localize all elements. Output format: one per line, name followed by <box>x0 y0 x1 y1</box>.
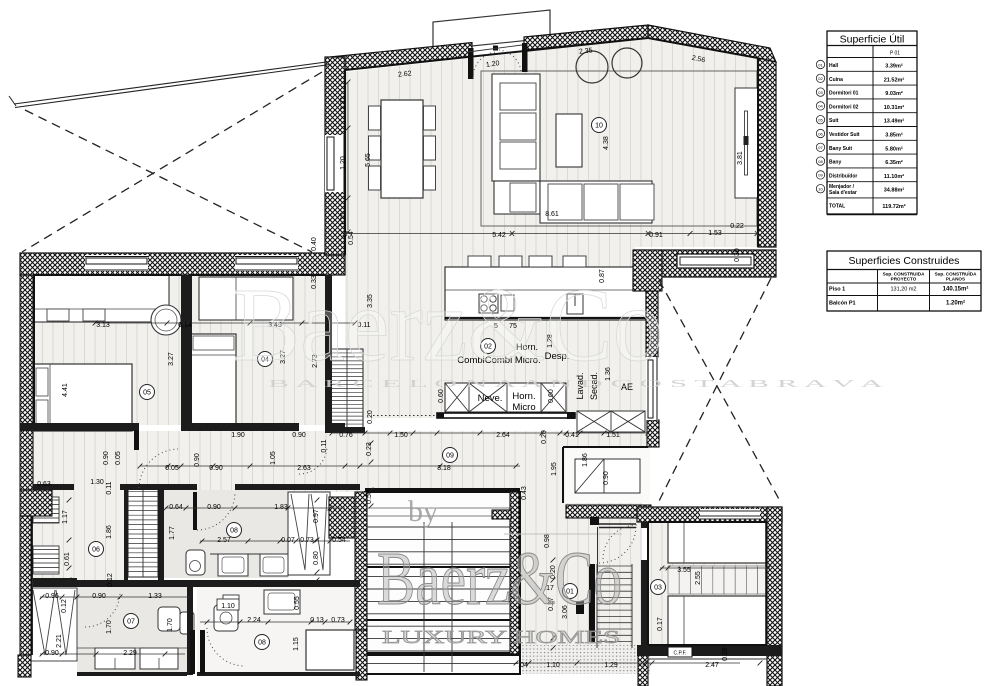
svg-text:0.73: 0.73 <box>300 537 314 544</box>
svg-text:0.80: 0.80 <box>313 551 320 565</box>
svg-text:05: 05 <box>143 390 151 397</box>
svg-text:0.55: 0.55 <box>294 596 301 610</box>
svg-text:0.14: 0.14 <box>178 322 192 329</box>
svg-text:06: 06 <box>818 131 823 136</box>
svg-text:3.81: 3.81 <box>737 151 744 165</box>
svg-text:1.33: 1.33 <box>148 593 162 600</box>
svg-text:P 01: P 01 <box>890 51 900 57</box>
svg-text:11.10m²: 11.10m² <box>884 173 904 180</box>
svg-text:4.41: 4.41 <box>62 383 69 397</box>
svg-text:07: 07 <box>127 619 135 626</box>
svg-text:6.35m²: 6.35m² <box>885 159 903 166</box>
svg-text:0.22: 0.22 <box>730 223 744 230</box>
svg-text:Vestidor Suit: Vestidor Suit <box>829 132 860 138</box>
svg-text:06: 06 <box>92 547 100 554</box>
svg-text:2.21: 2.21 <box>56 634 63 648</box>
svg-text:0.90: 0.90 <box>194 453 201 467</box>
svg-text:1.83: 1.83 <box>274 504 288 511</box>
svg-text:0.17: 0.17 <box>657 617 664 631</box>
svg-text:3.85m²: 3.85m² <box>885 132 903 139</box>
svg-text:Cuina: Cuina <box>829 77 843 83</box>
svg-text:03: 03 <box>654 585 662 592</box>
svg-text:0.91: 0.91 <box>649 232 663 239</box>
svg-text:Hall: Hall <box>829 63 839 69</box>
svg-text:PROYECTO: PROYECTO <box>891 277 917 282</box>
svg-text:0.90: 0.90 <box>45 650 59 657</box>
svg-text:Suit: Suit <box>829 118 839 124</box>
svg-text:Neve.: Neve. <box>478 393 503 404</box>
svg-text:08: 08 <box>230 528 238 535</box>
svg-text:B A R C E L O N A A N D C O: B A R C E L O N A A N D C O S T A B R A … <box>268 378 883 390</box>
svg-text:09: 09 <box>446 453 454 460</box>
svg-text:Sala d'estar: Sala d'estar <box>829 190 857 196</box>
svg-text:0.28: 0.28 <box>722 647 729 661</box>
svg-text:1.29: 1.29 <box>604 662 618 669</box>
svg-text:0.23: 0.23 <box>366 442 373 456</box>
svg-text:.04: .04 <box>518 662 528 669</box>
svg-text:8.61: 8.61 <box>545 211 559 218</box>
svg-text:1.86: 1.86 <box>106 525 113 539</box>
svg-text:PLANOS: PLANOS <box>946 277 965 282</box>
svg-text:0.11: 0.11 <box>321 439 328 452</box>
svg-text:2.57: 2.57 <box>217 537 231 544</box>
svg-text:10.31m²: 10.31m² <box>884 104 905 111</box>
svg-text:2.24: 2.24 <box>247 617 261 624</box>
svg-text:0.40: 0.40 <box>311 237 318 251</box>
svg-text:0.54: 0.54 <box>332 537 346 544</box>
svg-text:1.21: 1.21 <box>340 96 347 110</box>
svg-text:0.54: 0.54 <box>348 231 355 245</box>
svg-text:2.29: 2.29 <box>123 650 137 657</box>
svg-text:1.70: 1.70 <box>167 618 174 632</box>
svg-text:0.60: 0.60 <box>548 389 555 403</box>
svg-text:LUXURY HOMES: LUXURY HOMES <box>382 627 620 647</box>
svg-text:1.05: 1.05 <box>270 451 277 465</box>
svg-text:0.73: 0.73 <box>331 617 345 624</box>
svg-text:119.72m²: 119.72m² <box>882 203 905 210</box>
svg-text:Baerz&Co: Baerz&Co <box>233 266 663 383</box>
svg-text:Balcón P1: Balcón P1 <box>829 301 856 307</box>
svg-text:1.77: 1.77 <box>169 526 176 540</box>
svg-text:Micro: Micro <box>512 402 535 413</box>
svg-text:04: 04 <box>818 104 823 109</box>
svg-text:1.90: 1.90 <box>231 432 245 439</box>
svg-text:3.27: 3.27 <box>168 352 175 366</box>
svg-text:1.51: 1.51 <box>606 432 620 439</box>
svg-text:4.38: 4.38 <box>603 136 610 150</box>
svg-text:1.17: 1.17 <box>62 510 69 524</box>
svg-text:07: 07 <box>818 145 823 150</box>
svg-text:0.63: 0.63 <box>37 481 51 488</box>
svg-text:5.65: 5.65 <box>365 153 372 167</box>
svg-text:0.11: 0.11 <box>106 481 113 494</box>
svg-text:2.35: 2.35 <box>579 47 593 55</box>
svg-text:0.90: 0.90 <box>603 471 610 485</box>
svg-text:2.55: 2.55 <box>695 571 702 585</box>
svg-text:0.61: 0.61 <box>64 552 71 566</box>
svg-text:3.39m²: 3.39m² <box>885 63 903 70</box>
svg-text:1.30: 1.30 <box>90 479 104 486</box>
svg-text:2.63: 2.63 <box>297 465 311 472</box>
svg-text:0.12: 0.12 <box>107 573 114 587</box>
svg-text:09: 09 <box>818 173 823 178</box>
svg-text:C.P.F.: C.P.F. <box>674 651 687 657</box>
svg-text:Bany Suit: Bany Suit <box>829 146 852 152</box>
svg-text:0.76: 0.76 <box>339 432 353 439</box>
svg-text:1.20: 1.20 <box>340 156 347 170</box>
svg-text:03: 03 <box>818 90 823 95</box>
svg-text:140.15m²: 140.15m² <box>943 286 969 293</box>
svg-text:TOTAL: TOTAL <box>829 203 845 209</box>
svg-text:0.12: 0.12 <box>61 599 68 613</box>
svg-text:Piso 1: Piso 1 <box>829 287 845 293</box>
svg-text:Horn.: Horn. <box>512 391 535 402</box>
svg-text:08: 08 <box>818 159 823 164</box>
svg-text:0.50: 0.50 <box>366 490 373 504</box>
svg-text:Superficie Útil: Superficie Útil <box>840 33 905 46</box>
svg-text:2.64: 2.64 <box>496 432 510 439</box>
svg-text:08: 08 <box>258 640 266 647</box>
svg-text:Baerz&Co: Baerz&Co <box>377 537 622 621</box>
svg-text:1.20m²: 1.20m² <box>946 300 965 307</box>
svg-text:3.13: 3.13 <box>96 322 110 329</box>
svg-text:1.95: 1.95 <box>551 462 558 476</box>
svg-text:0.90: 0.90 <box>292 432 306 439</box>
svg-text:2.47: 2.47 <box>705 662 719 669</box>
svg-text:Distribuïdor: Distribuïdor <box>829 173 857 179</box>
svg-text:0.41: 0.41 <box>565 432 579 439</box>
svg-text:Dormitori 02: Dormitori 02 <box>829 104 859 110</box>
svg-text:10: 10 <box>595 123 603 130</box>
svg-text:0.90: 0.90 <box>92 593 106 600</box>
svg-text:0.90: 0.90 <box>207 504 221 511</box>
svg-text:0.43: 0.43 <box>521 486 528 500</box>
svg-text:0.05: 0.05 <box>115 451 122 465</box>
svg-text:0.96: 0.96 <box>45 593 59 600</box>
svg-text:1.50: 1.50 <box>394 432 408 439</box>
svg-text:0.97: 0.97 <box>313 509 320 523</box>
svg-text:1.15: 1.15 <box>293 637 300 651</box>
svg-text:Bany: Bany <box>829 160 841 166</box>
svg-text:by: by <box>408 495 438 528</box>
svg-text:13.49m²: 13.49m² <box>884 118 905 125</box>
svg-text:Dormitori 01: Dormitori 01 <box>829 91 859 97</box>
svg-text:5.42: 5.42 <box>492 232 506 239</box>
svg-text:0.30: 0.30 <box>734 248 741 262</box>
svg-text:21.52m²: 21.52m² <box>884 76 905 83</box>
svg-text:Superficies Construides: Superficies Construides <box>849 255 960 267</box>
svg-text:1.10: 1.10 <box>221 603 235 610</box>
svg-text:1.53: 1.53 <box>708 230 722 237</box>
svg-text:0.20: 0.20 <box>541 430 548 444</box>
svg-text:0.60: 0.60 <box>438 389 445 403</box>
svg-text:0.05: 0.05 <box>165 465 179 472</box>
svg-text:0.13: 0.13 <box>310 617 324 624</box>
svg-text:05: 05 <box>818 118 823 123</box>
svg-text:3.18: 3.18 <box>437 465 451 472</box>
svg-text:10: 10 <box>818 187 823 192</box>
svg-text:1.70: 1.70 <box>106 620 113 634</box>
svg-text:1.10: 1.10 <box>546 662 560 669</box>
svg-text:0.64: 0.64 <box>169 504 183 511</box>
svg-text:0.90: 0.90 <box>103 451 110 465</box>
svg-text:01: 01 <box>818 62 823 67</box>
svg-text:1.15: 1.15 <box>340 212 347 226</box>
svg-text:02: 02 <box>818 76 823 81</box>
svg-text:5.80m²: 5.80m² <box>885 145 903 152</box>
svg-text:9.03m²: 9.03m² <box>885 90 903 97</box>
svg-text:0.90: 0.90 <box>209 465 223 472</box>
svg-text:0.20: 0.20 <box>367 410 374 424</box>
svg-text:3.55: 3.55 <box>677 567 691 574</box>
svg-text:34.88m²: 34.88m² <box>884 187 905 194</box>
svg-text:0.07: 0.07 <box>281 537 295 544</box>
svg-text:1.86: 1.86 <box>582 453 589 467</box>
svg-text:2.62: 2.62 <box>398 70 412 78</box>
svg-text:131,20 m2: 131,20 m2 <box>891 287 917 293</box>
